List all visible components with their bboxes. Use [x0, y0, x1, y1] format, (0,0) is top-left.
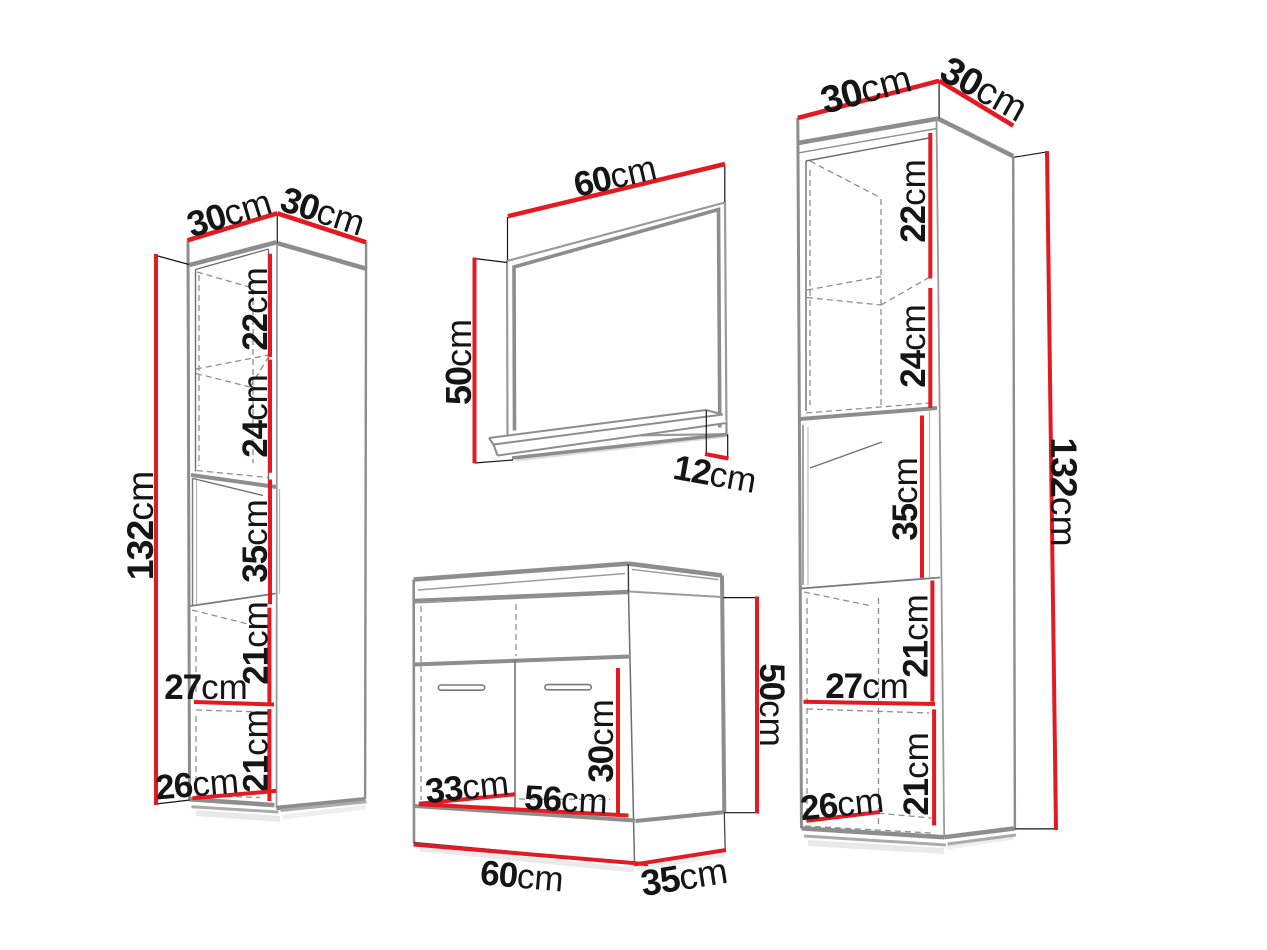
- svg-text:22cm: 22cm: [236, 267, 275, 351]
- svg-text:60cm: 60cm: [479, 853, 566, 899]
- svg-text:132cm: 132cm: [119, 471, 161, 581]
- svg-text:27cm: 27cm: [164, 668, 248, 707]
- svg-text:50cm: 50cm: [438, 319, 479, 405]
- svg-text:26cm: 26cm: [154, 761, 241, 807]
- svg-text:132cm: 132cm: [1043, 437, 1085, 547]
- svg-text:21cm: 21cm: [236, 709, 275, 793]
- svg-text:56cm: 56cm: [523, 778, 609, 821]
- svg-text:21cm: 21cm: [897, 732, 936, 816]
- svg-text:24cm: 24cm: [894, 304, 933, 388]
- svg-text:35cm: 35cm: [236, 499, 275, 583]
- svg-text:35cm: 35cm: [886, 457, 925, 541]
- svg-text:24cm: 24cm: [236, 374, 275, 458]
- svg-text:21cm: 21cm: [896, 594, 935, 678]
- svg-text:50cm: 50cm: [753, 663, 792, 747]
- svg-text:27cm: 27cm: [825, 667, 909, 706]
- svg-text:30cm: 30cm: [582, 699, 621, 783]
- svg-text:22cm: 22cm: [894, 159, 933, 243]
